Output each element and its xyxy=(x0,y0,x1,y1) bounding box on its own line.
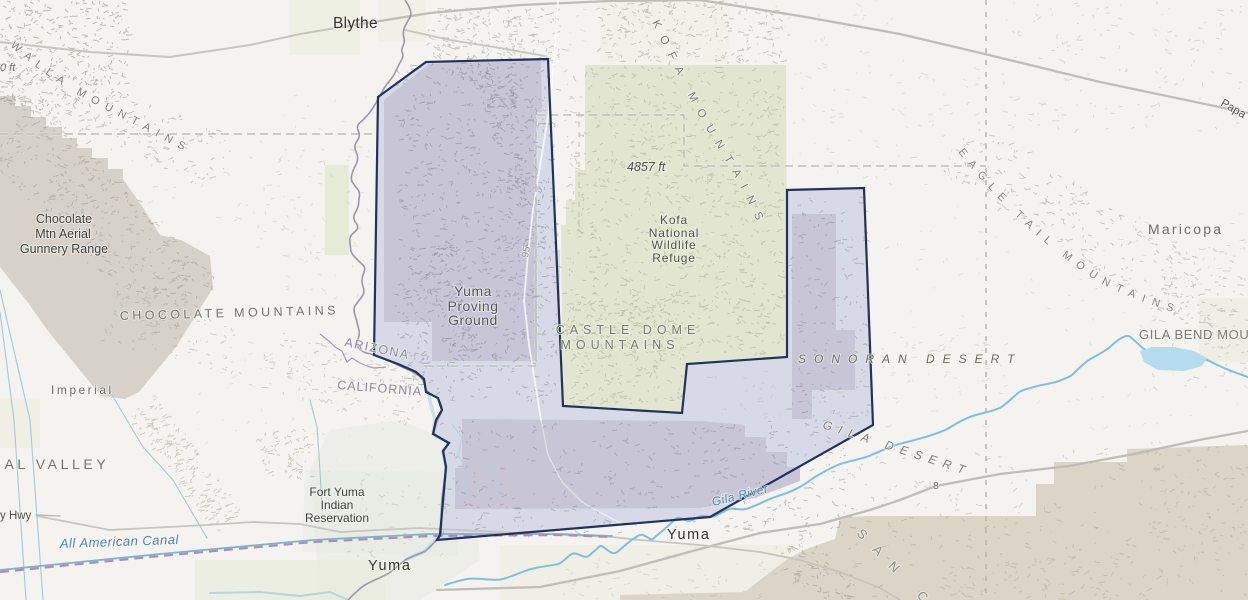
svg-text:MOUNTAINS: MOUNTAINS xyxy=(560,338,679,352)
svg-text:Indian: Indian xyxy=(321,498,354,512)
svg-text:Blythe: Blythe xyxy=(333,15,378,32)
svg-text:8: 8 xyxy=(933,480,939,492)
svg-text:GILA BEND MOUN: GILA BEND MOUN xyxy=(1139,327,1248,342)
svg-text:Chocolate: Chocolate xyxy=(36,212,92,226)
svg-text:4857 ft: 4857 ft xyxy=(627,160,666,174)
svg-text:Kofa: Kofa xyxy=(660,213,688,227)
svg-text:Refuge: Refuge xyxy=(652,251,696,265)
svg-text:Yuma: Yuma xyxy=(454,283,492,299)
svg-text:0 ft: 0 ft xyxy=(0,62,16,74)
svg-text:Ground: Ground xyxy=(448,312,498,328)
svg-text:y Hwy: y Hwy xyxy=(0,510,32,522)
svg-text:IAL VALLEY: IAL VALLEY xyxy=(0,456,109,472)
svg-text:Yuma: Yuma xyxy=(368,558,411,574)
svg-text:Maricopa: Maricopa xyxy=(1148,221,1223,237)
svg-text:Yuma: Yuma xyxy=(667,527,710,543)
svg-text:Mtn Aerial: Mtn Aerial xyxy=(35,227,91,241)
svg-text:CASTLE DOME: CASTLE DOME xyxy=(556,323,701,337)
svg-text:Fort Yuma: Fort Yuma xyxy=(309,485,364,499)
svg-text:SONORAN DESERT: SONORAN DESERT xyxy=(798,352,1022,366)
svg-text:Imperial: Imperial xyxy=(51,383,114,397)
svg-text:Gunnery Range: Gunnery Range xyxy=(20,242,108,256)
svg-text:Wildlife: Wildlife xyxy=(651,238,696,252)
svg-text:Reservation: Reservation xyxy=(305,511,369,525)
